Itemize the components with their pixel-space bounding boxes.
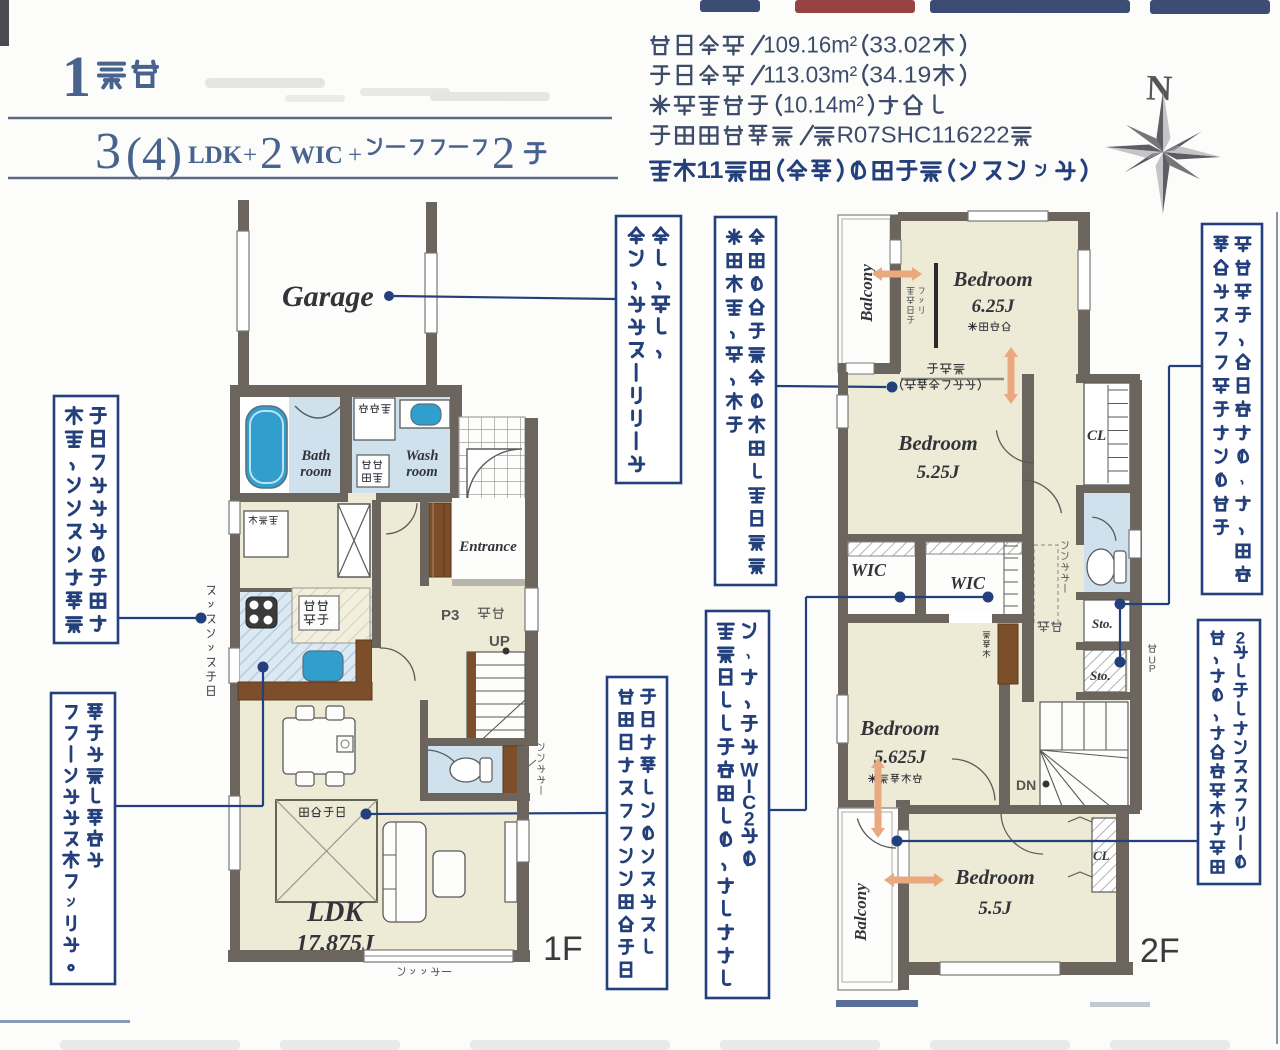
svg-text:Bedroom: Bedroom [954,865,1034,889]
svg-text:WIC: WIC [290,142,343,169]
svg-text:Bedroom: Bedroom [859,716,939,740]
svg-text:Balcony: Balcony [857,264,876,323]
svg-text:2: 2 [492,127,515,178]
svg-text:R07SHC116222: R07SHC116222 [837,122,1010,148]
svg-text:113.03m²: 113.03m² [763,62,857,88]
svg-text:10.14m²: 10.14m² [783,92,864,118]
svg-text:Garage: Garage [282,280,374,313]
svg-text:DN: DN [1016,777,1036,793]
svg-text:CL: CL [1087,428,1106,444]
svg-text:+: + [243,142,257,169]
svg-text:3: 3 [95,123,121,180]
svg-text:2F: 2F [1140,932,1180,970]
svg-text:6.25J: 6.25J [972,296,1015,317]
svg-text:34.19: 34.19 [869,62,931,88]
svg-text:LDK: LDK [188,142,243,169]
svg-text:2: 2 [1236,628,1245,647]
svg-text:33.02: 33.02 [869,32,931,58]
svg-text:CL: CL [1093,848,1110,863]
svg-text:5.25J: 5.25J [917,462,960,483]
svg-text:N: N [1146,67,1173,108]
svg-text:WIC: WIC [950,573,986,593]
svg-text:5.5J: 5.5J [978,898,1012,919]
svg-text:P: P [1149,663,1156,675]
svg-text:Entrance: Entrance [458,539,517,555]
svg-text:P3: P3 [441,607,459,624]
svg-text:(4): (4) [126,128,182,181]
svg-text:1F: 1F [543,930,583,968]
svg-text:109.16m²: 109.16m² [763,32,857,58]
svg-text:11: 11 [697,157,724,184]
svg-text:room: room [300,464,331,480]
svg-text:2: 2 [260,127,283,178]
svg-text:LDK: LDK [306,897,365,928]
svg-text:Bedroom: Bedroom [897,431,977,455]
svg-text:Bedroom: Bedroom [952,267,1032,291]
svg-text:UP: UP [489,633,510,650]
svg-text:Bath: Bath [300,448,330,464]
svg-text:WIC: WIC [851,560,887,580]
svg-text:1: 1 [62,44,91,109]
svg-text:Balcony: Balcony [851,883,870,942]
svg-text:Sto.: Sto. [1092,616,1113,631]
svg-text:+: + [348,142,362,169]
svg-text:Sto.: Sto. [1090,668,1111,683]
svg-text:room: room [406,464,437,480]
svg-text:Wash: Wash [406,448,439,464]
